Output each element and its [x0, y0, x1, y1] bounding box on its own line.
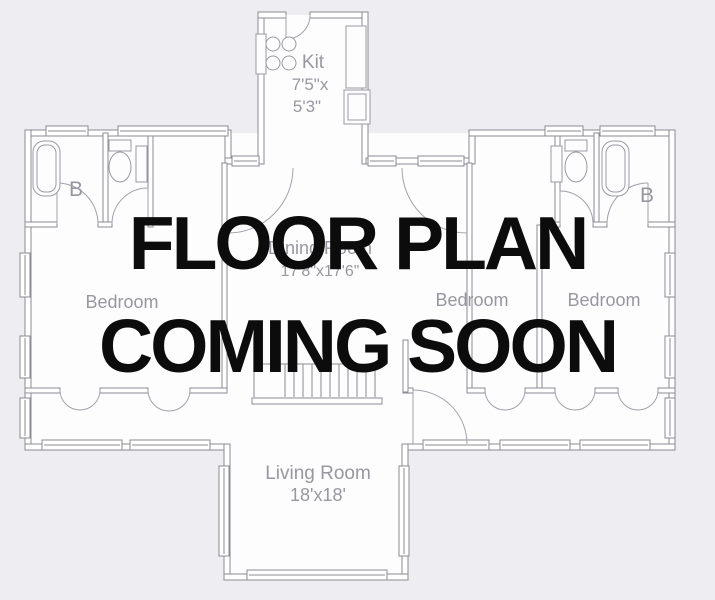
- overlay-line-coming-soon: COMING SOON: [0, 295, 715, 398]
- toilet-right-icon: [565, 140, 587, 182]
- kitchen-counter-icon: [346, 26, 366, 88]
- floor-plan-page: Kit 7'5"x 5'3" B B Bedroom Dining Room 1…: [0, 0, 715, 600]
- living-room-label: Living Room: [265, 463, 371, 484]
- living-room-dims: 18'x18': [290, 485, 346, 505]
- kitchen-label: Kit: [302, 52, 325, 73]
- sink-left-icon: [136, 146, 147, 182]
- kitchen-sink-icon: [344, 90, 370, 124]
- toilet-left-icon: [109, 140, 131, 182]
- bathtub-left-icon: [33, 141, 60, 196]
- sink-right-icon: [551, 146, 562, 182]
- kitchen-dim2: 5'3": [293, 97, 321, 116]
- coming-soon-overlay: FLOOR PLAN COMING SOON: [0, 192, 715, 398]
- kitchen-dim1: 7'5"x: [292, 75, 329, 94]
- overlay-line-floor-plan: FLOOR PLAN: [0, 192, 715, 295]
- bathtub-right-icon: [602, 141, 629, 196]
